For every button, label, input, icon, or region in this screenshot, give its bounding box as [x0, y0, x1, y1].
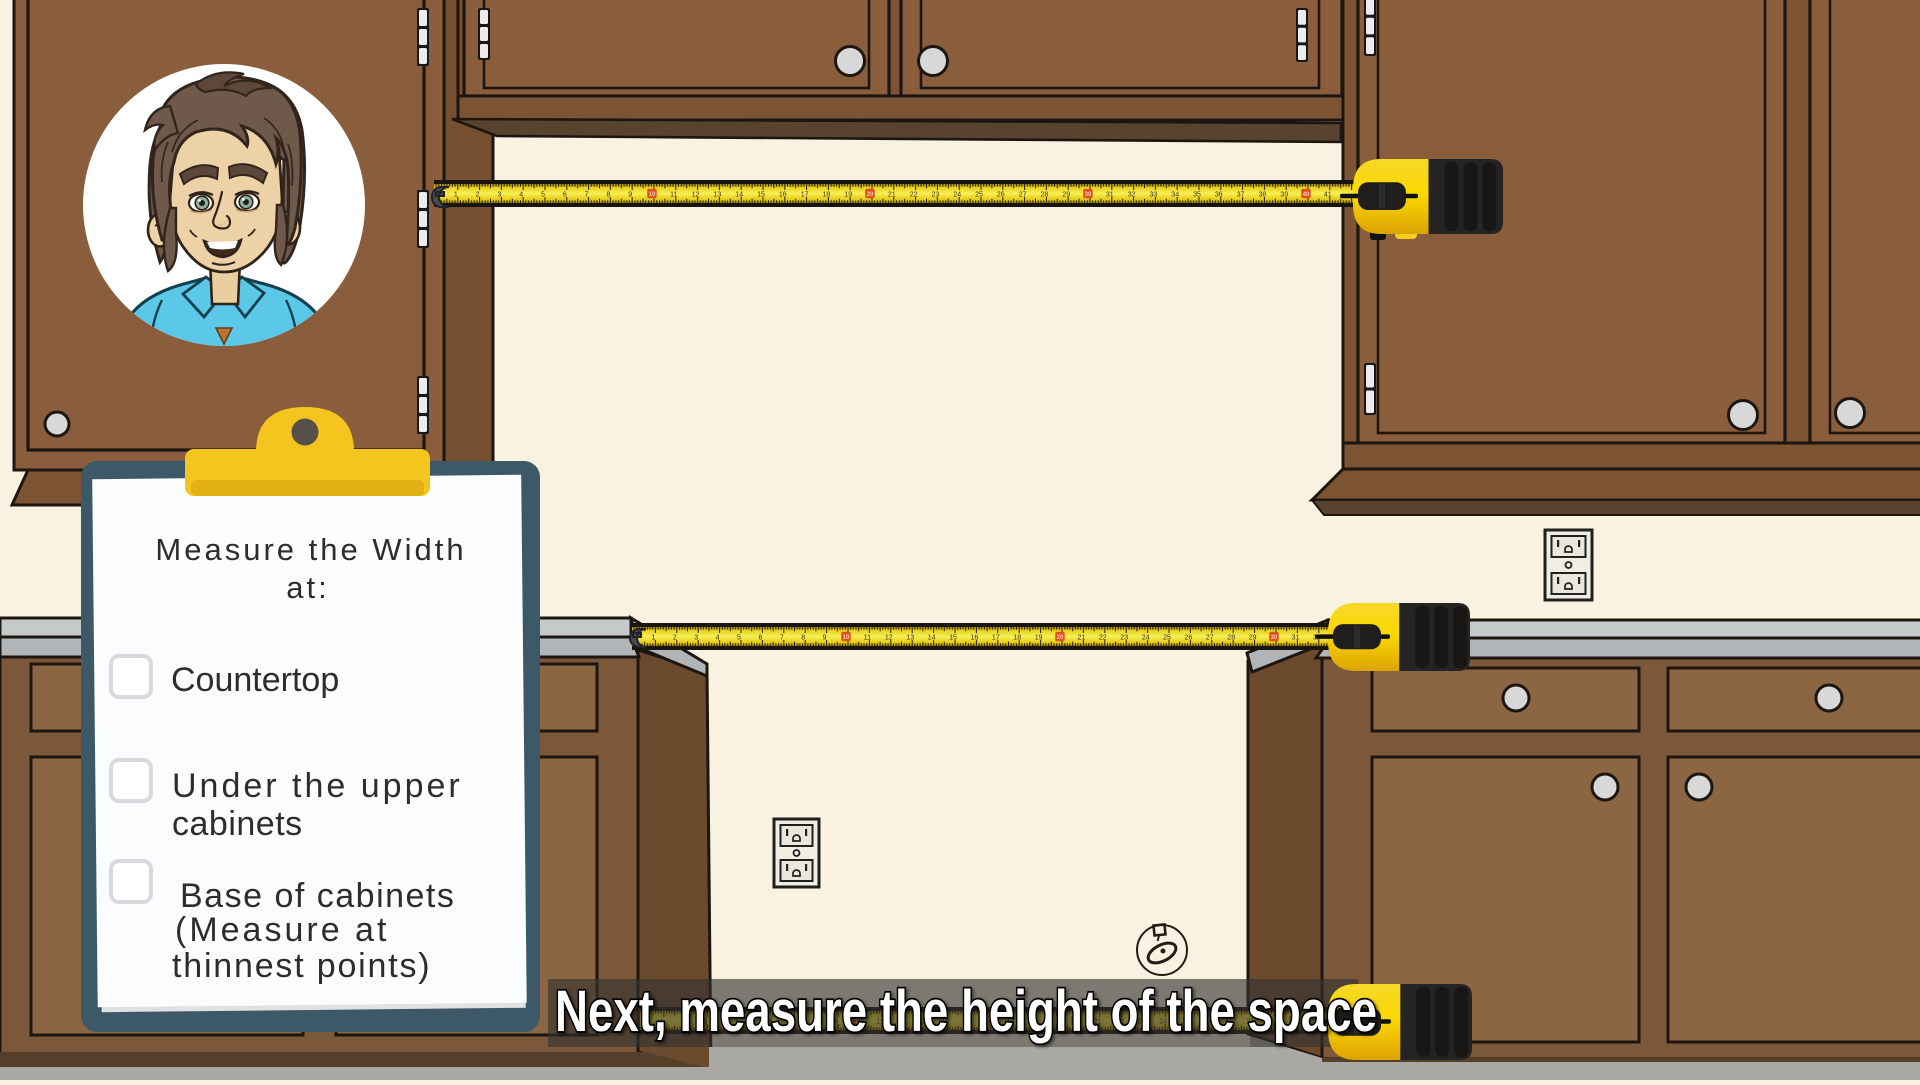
svg-text:3: 3 — [694, 634, 698, 641]
svg-text:28: 28 — [1041, 191, 1049, 198]
svg-text:5: 5 — [541, 191, 545, 198]
svg-text:6: 6 — [563, 191, 567, 198]
svg-text:17: 17 — [992, 634, 1000, 641]
svg-text:9: 9 — [823, 634, 827, 641]
svg-text:2: 2 — [673, 634, 677, 641]
svg-text:16: 16 — [971, 634, 979, 641]
svg-text:9: 9 — [628, 191, 632, 198]
svg-text:2: 2 — [476, 191, 480, 198]
svg-text:21: 21 — [888, 191, 896, 198]
svg-text:33: 33 — [1150, 191, 1158, 198]
svg-text:13: 13 — [714, 191, 722, 198]
svg-text:4: 4 — [519, 191, 523, 198]
svg-text:19: 19 — [1035, 634, 1043, 641]
svg-text:30: 30 — [1271, 635, 1278, 641]
svg-text:23: 23 — [1120, 634, 1128, 641]
svg-text:12: 12 — [692, 191, 700, 198]
svg-text:36: 36 — [1215, 191, 1223, 198]
svg-text:13: 13 — [906, 634, 914, 641]
svg-text:19: 19 — [844, 191, 852, 198]
svg-text:37: 37 — [1237, 191, 1245, 198]
svg-text:29: 29 — [1249, 634, 1257, 641]
svg-text:24: 24 — [1142, 634, 1150, 641]
svg-text:8: 8 — [801, 634, 805, 641]
svg-text:3: 3 — [497, 191, 501, 198]
svg-text:31: 31 — [1106, 191, 1114, 198]
svg-text:22: 22 — [1099, 634, 1107, 641]
svg-text:10: 10 — [649, 192, 656, 198]
svg-text:8: 8 — [606, 191, 610, 198]
svg-text:1: 1 — [651, 634, 655, 641]
svg-text:17: 17 — [801, 191, 809, 198]
svg-text:40: 40 — [1303, 192, 1310, 198]
svg-text:5: 5 — [737, 634, 741, 641]
svg-text:Under the upper: Under the upper — [172, 767, 463, 805]
svg-text:18: 18 — [1013, 634, 1021, 641]
svg-text:31: 31 — [1292, 634, 1300, 641]
svg-text:34: 34 — [1171, 191, 1179, 198]
svg-text:41: 41 — [1324, 191, 1332, 198]
svg-text:32: 32 — [1128, 191, 1136, 198]
svg-text:26: 26 — [997, 191, 1005, 198]
svg-text:29: 29 — [1062, 191, 1070, 198]
svg-text:at:: at: — [286, 570, 329, 605]
svg-text:cabinets: cabinets — [172, 805, 303, 843]
svg-text:28: 28 — [1227, 634, 1235, 641]
svg-text:26: 26 — [1185, 634, 1193, 641]
svg-text:27: 27 — [1206, 634, 1214, 641]
svg-text:38: 38 — [1259, 191, 1267, 198]
svg-text:15: 15 — [949, 634, 957, 641]
svg-text:1: 1 — [454, 191, 458, 198]
svg-text:27: 27 — [1019, 191, 1027, 198]
svg-text:21: 21 — [1078, 634, 1086, 641]
svg-text:14: 14 — [735, 191, 743, 198]
svg-text:Next, measure the height of th: Next, measure the height of the space — [555, 979, 1377, 1044]
svg-text:7: 7 — [585, 191, 589, 198]
svg-text:35: 35 — [1193, 191, 1201, 198]
svg-text:7: 7 — [780, 634, 784, 641]
svg-text:20: 20 — [1057, 635, 1064, 641]
svg-text:16: 16 — [779, 191, 787, 198]
svg-text:12: 12 — [885, 634, 893, 641]
svg-text:thinnest points): thinnest points) — [172, 947, 431, 985]
svg-text:4: 4 — [716, 634, 720, 641]
svg-text:15: 15 — [757, 191, 765, 198]
svg-text:11: 11 — [864, 634, 871, 641]
svg-text:23: 23 — [932, 191, 940, 198]
svg-text:Measure the Width: Measure the Width — [155, 532, 466, 567]
svg-text:11: 11 — [670, 191, 677, 198]
svg-text:Base of cabinets: Base of cabinets — [180, 877, 455, 915]
svg-text:10: 10 — [843, 635, 850, 641]
svg-text:25: 25 — [1163, 634, 1171, 641]
svg-text:22: 22 — [910, 191, 918, 198]
svg-text:20: 20 — [867, 192, 874, 198]
svg-text:Countertop: Countertop — [171, 661, 339, 699]
svg-text:30: 30 — [1085, 192, 1092, 198]
svg-text:39: 39 — [1280, 191, 1288, 198]
svg-text:(Measure at: (Measure at — [175, 911, 389, 949]
svg-text:14: 14 — [928, 634, 936, 641]
svg-text:24: 24 — [953, 191, 961, 198]
svg-text:6: 6 — [758, 634, 762, 641]
svg-text:25: 25 — [975, 191, 983, 198]
svg-text:18: 18 — [823, 191, 831, 198]
